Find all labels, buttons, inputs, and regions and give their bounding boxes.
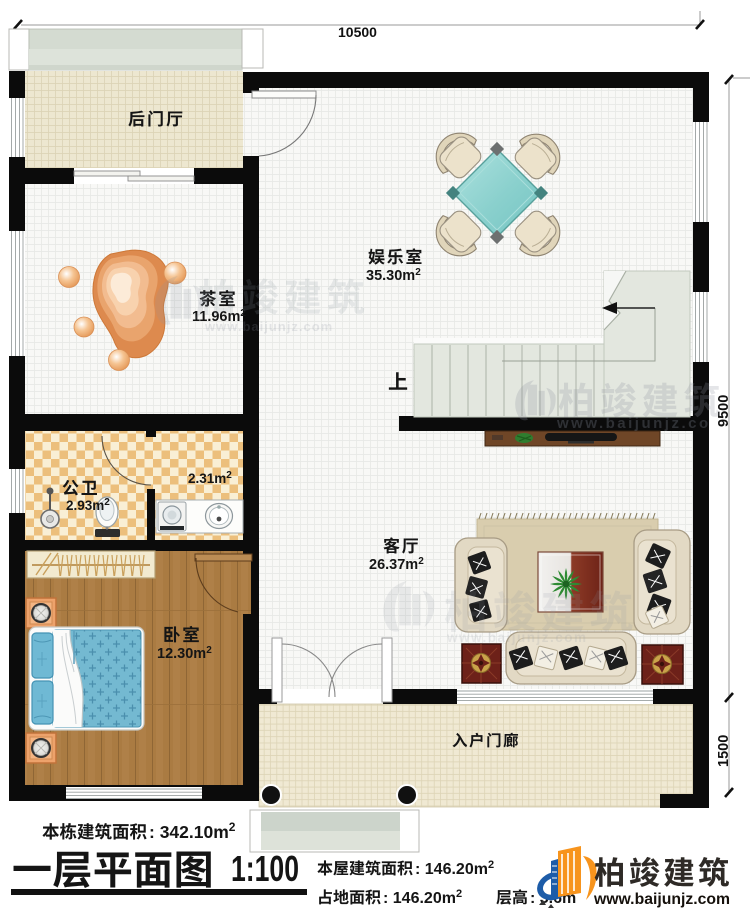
svg-text:12.30m2: 12.30m2: [157, 645, 212, 662]
svg-text:35.30m2: 35.30m2: [366, 267, 421, 284]
svg-text:1:100: 1:100: [231, 848, 299, 889]
svg-text:10500: 10500: [338, 24, 377, 40]
svg-text:: 146.20m2: : 146.20m2: [415, 859, 494, 878]
svg-text:2.93m2: 2.93m2: [66, 497, 110, 513]
svg-text:26.37m2: 26.37m2: [369, 556, 424, 573]
svg-text:www.baijunjz.com: www.baijunjz.com: [204, 319, 333, 334]
svg-text:www.baijunjz.com: www.baijunjz.com: [446, 630, 588, 645]
svg-text:www.baijunjz.com: www.baijunjz.com: [593, 891, 730, 908]
svg-text:: 146.20m2: : 146.20m2: [383, 888, 462, 907]
svg-text:1500: 1500: [716, 735, 732, 767]
svg-text:www.baijunjz.co: www.baijunjz.co: [556, 415, 711, 432]
svg-text:2.31m2: 2.31m2: [188, 470, 232, 486]
svg-text:: 342.10m2: : 342.10m2: [149, 820, 236, 842]
